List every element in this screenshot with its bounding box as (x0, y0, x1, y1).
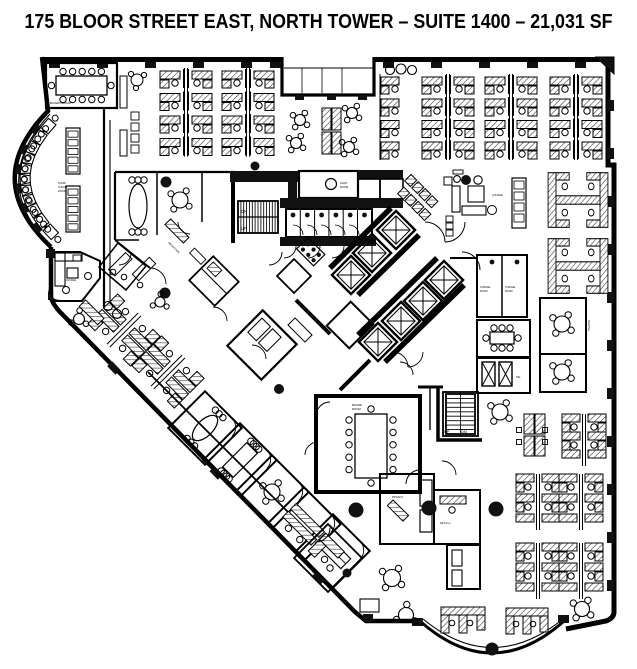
svg-text:CHANGE: CHANGE (505, 286, 516, 289)
svg-text:175 BLOOR STREET EAST, NORTH T: 175 BLOOR STREET EAST, NORTH TOWER – SUI… (25, 11, 613, 33)
svg-text:LOUNGE: LOUNGE (66, 279, 77, 282)
svg-text:ROOM: ROOM (58, 189, 66, 193)
svg-text:STAFF: STAFF (58, 181, 66, 185)
svg-text:ROOM: ROOM (505, 290, 512, 293)
svg-text:LUNCH: LUNCH (58, 185, 67, 189)
svg-text:CHANGE: CHANGE (480, 286, 491, 289)
svg-text:LOUNGE: LOUNGE (492, 193, 503, 197)
svg-text:MEETING: MEETING (587, 320, 590, 331)
svg-text:UP: UP (444, 429, 450, 434)
svg-text:UP: UP (241, 226, 247, 231)
svg-text:BOARD ROOM: BOARD ROOM (50, 101, 71, 105)
svg-text:ROOM: ROOM (480, 290, 487, 293)
svg-text:PROJECT: PROJECT (392, 496, 404, 499)
svg-text:TEL: TEL (516, 375, 521, 379)
svg-text:LIGHT: LIGHT (340, 181, 348, 185)
svg-text:DN: DN (461, 429, 467, 434)
svg-text:ROOM: ROOM (340, 185, 348, 189)
svg-text:DN: DN (241, 209, 247, 214)
svg-text:DET No.2: DET No.2 (440, 522, 451, 525)
svg-text:ROOM: ROOM (352, 407, 361, 411)
